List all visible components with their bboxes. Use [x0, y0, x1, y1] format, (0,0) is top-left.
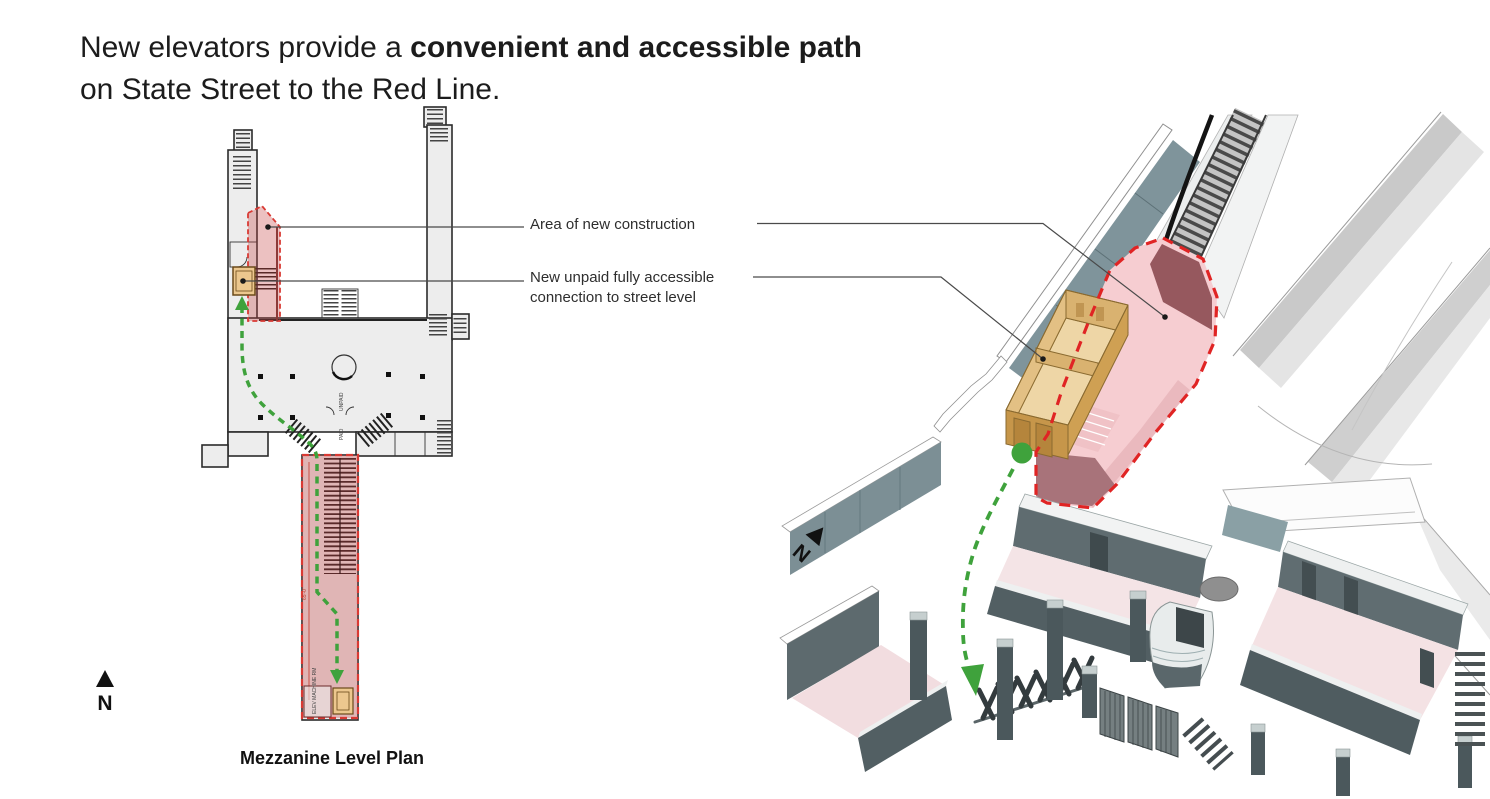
door: [1302, 561, 1316, 601]
door: [1090, 532, 1108, 572]
plan-rooms-bottom-left: [228, 432, 268, 456]
plan-right-bump: [452, 314, 469, 339]
unpaid-label: UNPAID: [339, 392, 345, 411]
page-title: New elevators provide a convenient and a…: [80, 31, 862, 106]
door: [1420, 648, 1434, 688]
plan-caption: Mezzanine Level Plan: [240, 748, 424, 768]
fare-gates: [1100, 688, 1178, 757]
leader-dot: [1162, 314, 1168, 320]
door: [1344, 576, 1358, 616]
station-booth: [1150, 602, 1214, 688]
new-construction-corridor-plan: [302, 455, 358, 718]
booth-door: [1176, 607, 1204, 648]
plan-left-bump: [202, 445, 228, 467]
plan-right-corridor: [427, 125, 452, 340]
iso-view: N: [780, 112, 1490, 796]
paid-label: PAID: [339, 428, 345, 440]
svg-text:N: N: [97, 692, 112, 715]
slide: New elevators provide a convenient and a…: [0, 0, 1490, 799]
new-construction-strip-plan: [248, 206, 280, 321]
floor-plan: 65'-0" ELEV MACHINE RM UNPAID PAID Mezza…: [96, 107, 469, 768]
leader-dot: [240, 278, 246, 284]
leader-dot: [265, 224, 271, 230]
north-arrow-plan: N: [96, 670, 114, 715]
annotation-area-of-new-construction: Area of new construction: [530, 216, 695, 233]
annotation-accessible-connection-line2: connection to street level: [530, 289, 696, 306]
round-column: [1200, 577, 1238, 601]
leader-dot: [1040, 356, 1046, 362]
title-line-1: New elevators provide a convenient and a…: [80, 31, 862, 64]
diagram-canvas: New elevators provide a convenient and a…: [0, 0, 1490, 799]
plan-new-construction: 65'-0" ELEV MACHINE RM: [248, 206, 358, 718]
title-line-2: on State Street to the Red Line.: [80, 73, 500, 106]
turnstiles: [975, 658, 1095, 722]
path-start-dot: [1012, 443, 1033, 464]
dimension-label: 65'-0": [302, 587, 308, 600]
annotation-accessible-connection-line1: New unpaid fully accessible: [530, 269, 714, 286]
elev-machine-room-label: ELEV MACHINE RM: [312, 668, 318, 714]
